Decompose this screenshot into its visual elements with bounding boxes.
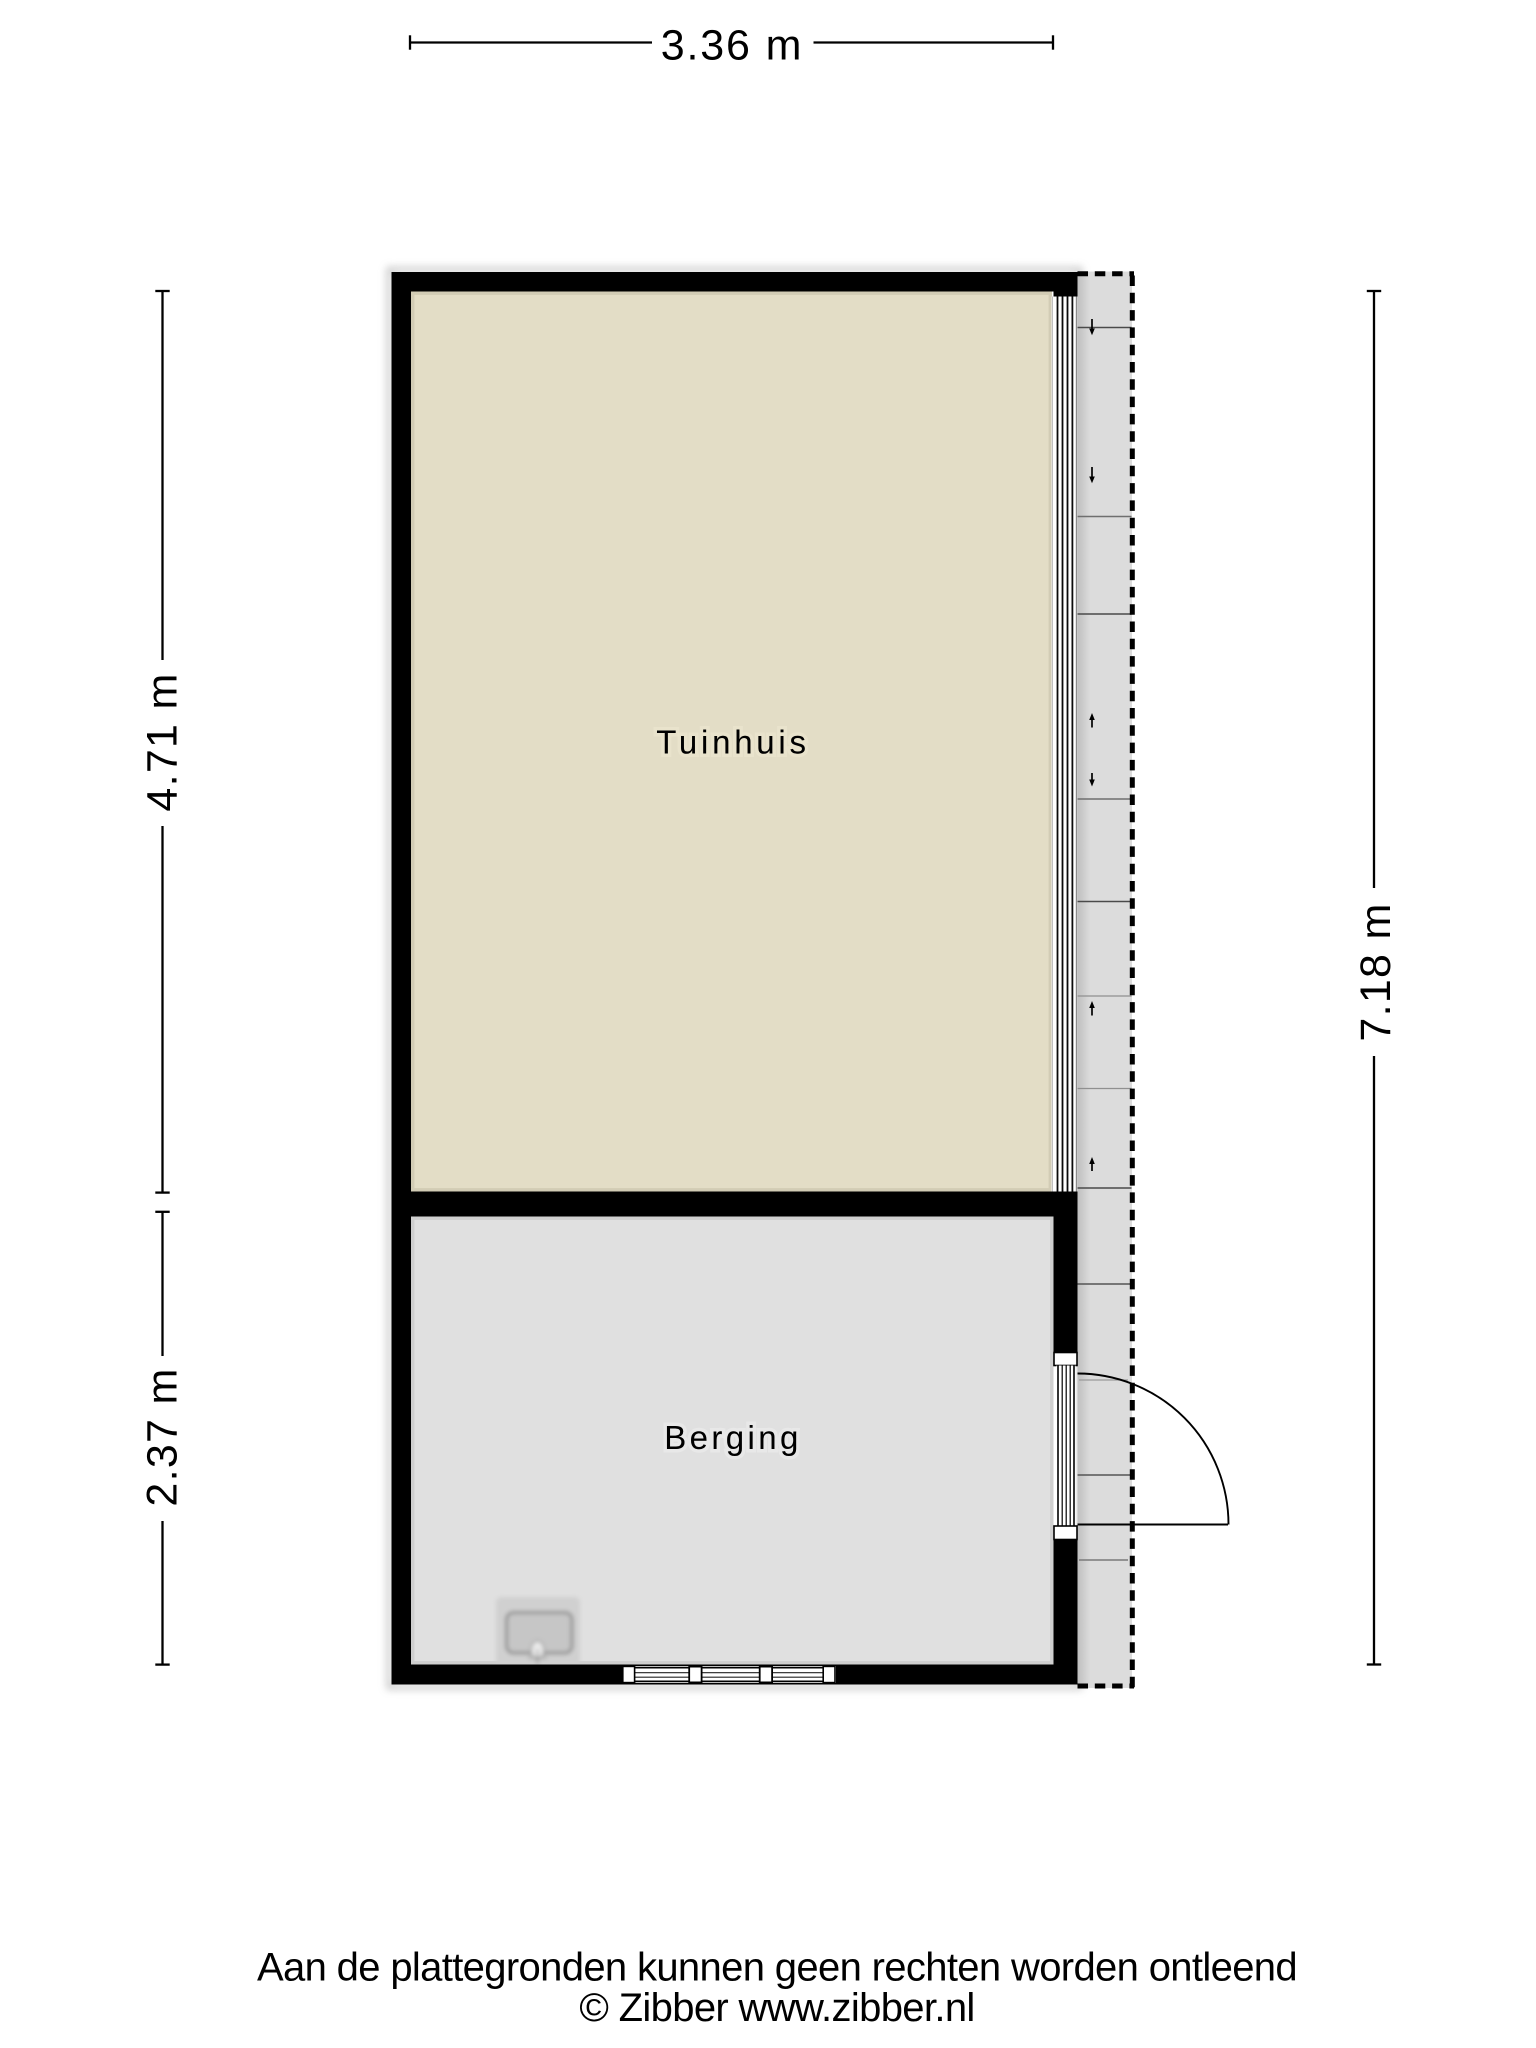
svg-text:© Zibber www.zibber.nl: © Zibber www.zibber.nl — [579, 1986, 974, 2030]
svg-text:3.36 m: 3.36 m — [661, 21, 804, 69]
svg-text:4.71 m: 4.71 m — [139, 672, 187, 811]
svg-text:7.18 m: 7.18 m — [1352, 902, 1400, 1041]
svg-text:Aan de plattegronden kunnen ge: Aan de plattegronden kunnen geen rechten… — [257, 1946, 1297, 1990]
svg-text:Tuinhuis: Tuinhuis — [656, 724, 810, 761]
svg-text:2.37 m: 2.37 m — [139, 1367, 187, 1506]
svg-text:Berging: Berging — [664, 1419, 802, 1456]
